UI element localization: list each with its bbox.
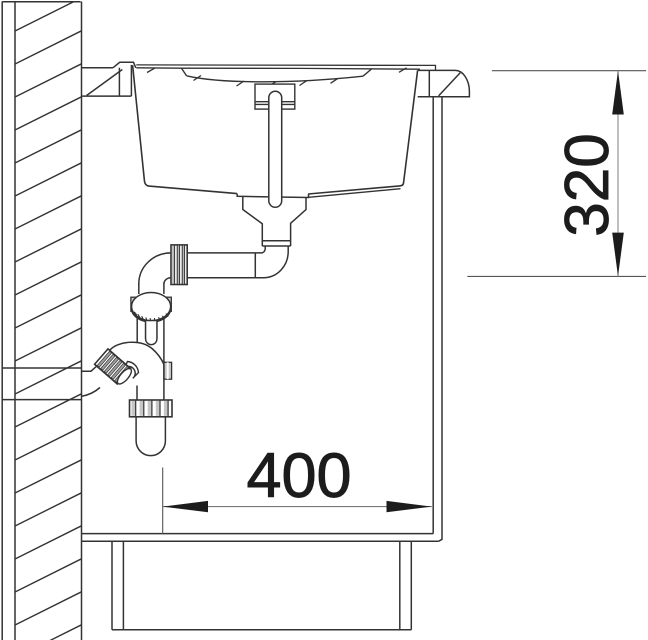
svg-text:400: 400 [246,441,351,511]
svg-text:320: 320 [553,133,622,236]
